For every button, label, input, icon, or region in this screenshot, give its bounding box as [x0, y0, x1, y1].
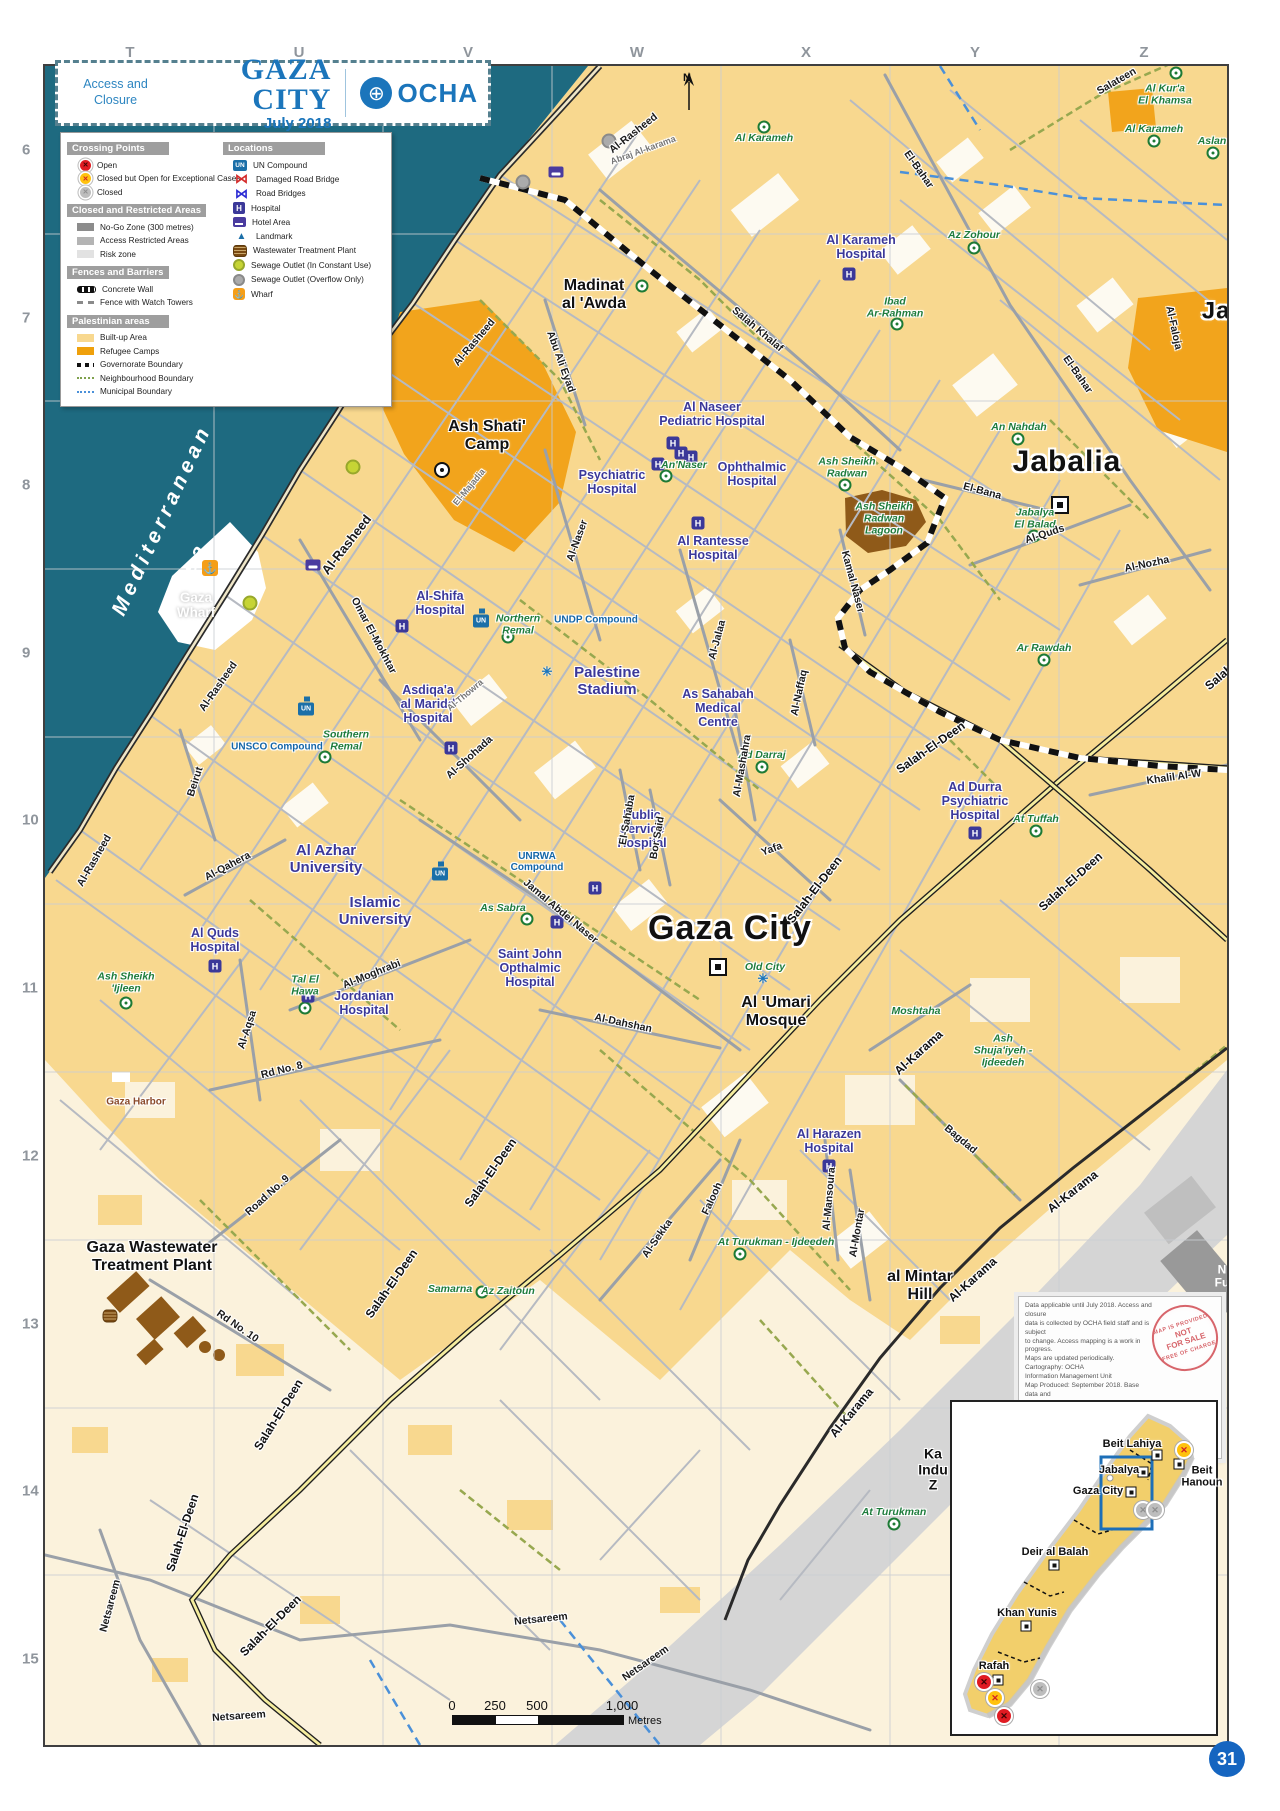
legend-section-title: Closed and Restricted Areas [67, 204, 206, 217]
legend-section-title: Fences and Barriers [67, 266, 169, 279]
legend-item: Access Restricted Areas [67, 235, 219, 246]
legend-item-label: Road Bridges [256, 189, 306, 198]
disclaimer-line: data is collected by OCHA field staff an… [1025, 1320, 1153, 1338]
legend-item-label: UN Compound [253, 161, 307, 170]
legend-item-label: Concrete Wall [102, 285, 153, 294]
brr-legend-icon: ⋈ [233, 173, 250, 185]
scale-tick: 1,000 [606, 1698, 639, 1713]
gaza-strip-shape [965, 1416, 1192, 1716]
title-block: Access and Closure GAZA CITY July 2018 ⊕… [55, 60, 491, 126]
legend-item: Wastewater Treatment Plant [223, 245, 387, 257]
legend-item-label: Open [97, 161, 117, 170]
not-for-sale-stamp: MAP IS PROVIDED NOT FOR SALE FREE OF CHA… [1143, 1296, 1226, 1379]
nb-legend-icon [77, 377, 94, 379]
legend-locations-column: LocationsUNUN Compound⋈Damaged Road Brid… [223, 138, 387, 400]
sw-camp-legend-icon [77, 347, 94, 355]
sg-legend-icon [233, 274, 245, 286]
map-title: GAZA CITY [173, 55, 331, 115]
legend-item-label: Municipal Boundary [100, 387, 172, 396]
grid-row-label: 13 [22, 1316, 39, 1333]
disclaimer-line: to change. Access mapping is a work in p… [1025, 1338, 1153, 1356]
legend-item-label: Neighbourhood Boundary [100, 374, 193, 383]
scale-bar-graphic [452, 1715, 624, 1725]
xc-legend-icon: ✕ [80, 187, 91, 198]
sw-built-legend-icon [77, 334, 94, 342]
disclaimer-line: Information Management Unit [1025, 1373, 1153, 1382]
inset-basemap [952, 1402, 1216, 1734]
scale-ticks: 02505001,000 [400, 1698, 630, 1713]
ocha-logo: ⊕ OCHA [360, 77, 478, 109]
grid-row-label: 14 [22, 1483, 39, 1500]
grid-row-label: 10 [22, 812, 39, 829]
xe-legend-icon: ✕ [80, 173, 91, 184]
wall-legend-icon [77, 286, 96, 293]
grid-column-label: Y [970, 44, 980, 61]
legend-item: UNUN Compound [223, 160, 387, 171]
grid-row-label: 11 [22, 980, 38, 997]
legend-item-label: Closed [97, 188, 123, 197]
legend-item-label: Sewage Outlet (Overflow Only) [251, 275, 364, 284]
program-label: Access and Closure [68, 77, 163, 108]
sw-risk-legend-icon [77, 250, 94, 258]
hosp-legend-icon: H [233, 202, 245, 214]
page-number-badge: 31 [1209, 1741, 1245, 1777]
camp-patch [1108, 88, 1156, 132]
gov-legend-icon [77, 363, 94, 367]
legend-item-label: Damaged Road Bridge [256, 175, 339, 184]
legend-item-label: Hospital [251, 204, 281, 213]
legend-item: Neighbourhood Boundary [67, 373, 219, 384]
grid-row-label: 6 [22, 142, 30, 159]
map-date: July 2018 [173, 115, 331, 132]
fence-legend-icon [77, 301, 94, 304]
org-name: OCHA [397, 78, 478, 109]
bed-legend-icon [233, 217, 246, 227]
legend-item: ▲Landmark [223, 230, 387, 242]
grid-column-label: V [463, 44, 473, 61]
legend-section-title: Locations [223, 142, 325, 155]
un-emblem-icon: ⊕ [360, 77, 392, 109]
legend-section-title: Palestinian areas [67, 315, 169, 328]
grid-column-label: Z [1139, 44, 1148, 61]
legend-item: Concrete Wall [67, 284, 219, 295]
legend-item: Hotel Area [223, 217, 387, 228]
scale-tick: 0 [448, 1698, 455, 1713]
legend-box: Crossing Points✕Open✕Closed but Open for… [60, 132, 392, 407]
legend-item-label: Wastewater Treatment Plant [253, 246, 356, 255]
legend-item: Sewage Outlet (Overflow Only) [223, 274, 387, 286]
legend-item: Governorate Boundary [67, 359, 219, 370]
legend-item: Built-up Area [67, 332, 219, 343]
bar-legend-icon [233, 245, 247, 257]
legend-item-label: Governorate Boundary [100, 360, 183, 369]
disclaimer-line: Data applicable until July 2018. Access … [1025, 1302, 1153, 1320]
scale-bar: 02505001,000 Metres [400, 1698, 630, 1725]
grid-row-label: 12 [22, 1148, 39, 1165]
legend-section-title: Crossing Points [67, 142, 169, 155]
legend-item: ✕Open [67, 160, 219, 171]
legend-item: Refugee Camps [67, 346, 219, 357]
grid-column-label: T [125, 44, 134, 61]
legend-item-label: Landmark [256, 232, 292, 241]
legend-item-label: Risk zone [100, 250, 136, 259]
legend-item: No-Go Zone (300 metres) [67, 222, 219, 233]
north-arrow: N [683, 72, 691, 84]
un-legend-icon: UN [233, 160, 247, 171]
legend-item: HHospital [223, 202, 387, 214]
grid-column-label: X [801, 44, 811, 61]
disclaimer-line: Maps are updated periodically. Cartograp… [1025, 1355, 1153, 1373]
harbor-shape [112, 1072, 130, 1082]
legend-item: ✕Closed but Open for Exceptional Cases [67, 173, 219, 184]
north-arrow-glyph [683, 72, 695, 112]
scale-unit: Metres [628, 1715, 662, 1727]
legend-item: ✕Closed [67, 187, 219, 198]
grid-column-label: W [630, 44, 644, 61]
divider [345, 69, 346, 117]
mb-legend-icon [77, 391, 94, 393]
legend-item-label: Fence with Watch Towers [100, 298, 193, 307]
legend-item: ⚓Wharf [223, 288, 387, 300]
legend-item-label: Refugee Camps [100, 347, 159, 356]
inset-overview-map: ✕✕✕✕✕✕✕ Beit LahiyaBeit HanounJabalyaGaz… [950, 1400, 1218, 1736]
scale-tick: 500 [526, 1698, 548, 1713]
tri-legend-icon: ▲ [233, 230, 250, 242]
sw-ara-legend-icon [77, 237, 94, 245]
brb-legend-icon: ⋈ [233, 188, 250, 200]
xo-legend-icon: ✕ [80, 160, 91, 171]
grid-row-label: 8 [22, 477, 30, 494]
disclaimer-line: Map Produced: September 2018. Base data … [1025, 1382, 1153, 1400]
legend-item: ⋈Road Bridges [223, 188, 387, 200]
legend-item: ⋈Damaged Road Bridge [223, 173, 387, 185]
legend-item: Sewage Outlet (In Constant Use) [223, 259, 387, 271]
grid-row-label: 9 [22, 645, 30, 662]
sw-nogo-legend-icon [77, 223, 94, 231]
grid-row-label: 7 [22, 310, 30, 327]
legend-item-label: Access Restricted Areas [100, 236, 189, 245]
legend-item-label: Wharf [251, 290, 273, 299]
legend-item: Risk zone [67, 249, 219, 260]
legend-item-label: Closed but Open for Exceptional Cases [97, 174, 240, 183]
grid-row-label: 15 [22, 1651, 39, 1668]
page: ✳✳HHHHHHHHHHHHHHUNUNUN⚓ MediterraneanSea… [0, 0, 1280, 1811]
sy-legend-icon [233, 259, 245, 271]
legend-item-label: No-Go Zone (300 metres) [100, 223, 194, 232]
legend-item-label: Sewage Outlet (In Constant Use) [251, 261, 371, 270]
legend-left-column: Crossing Points✕Open✕Closed but Open for… [67, 138, 219, 400]
legend-item-label: Hotel Area [252, 218, 290, 227]
scale-tick: 250 [484, 1698, 506, 1713]
anc-legend-icon: ⚓ [233, 288, 245, 300]
inset-town-dot [1107, 1475, 1113, 1481]
legend-item: Municipal Boundary [67, 386, 219, 397]
legend-item: Fence with Watch Towers [67, 297, 219, 308]
legend-item-label: Built-up Area [100, 333, 147, 342]
